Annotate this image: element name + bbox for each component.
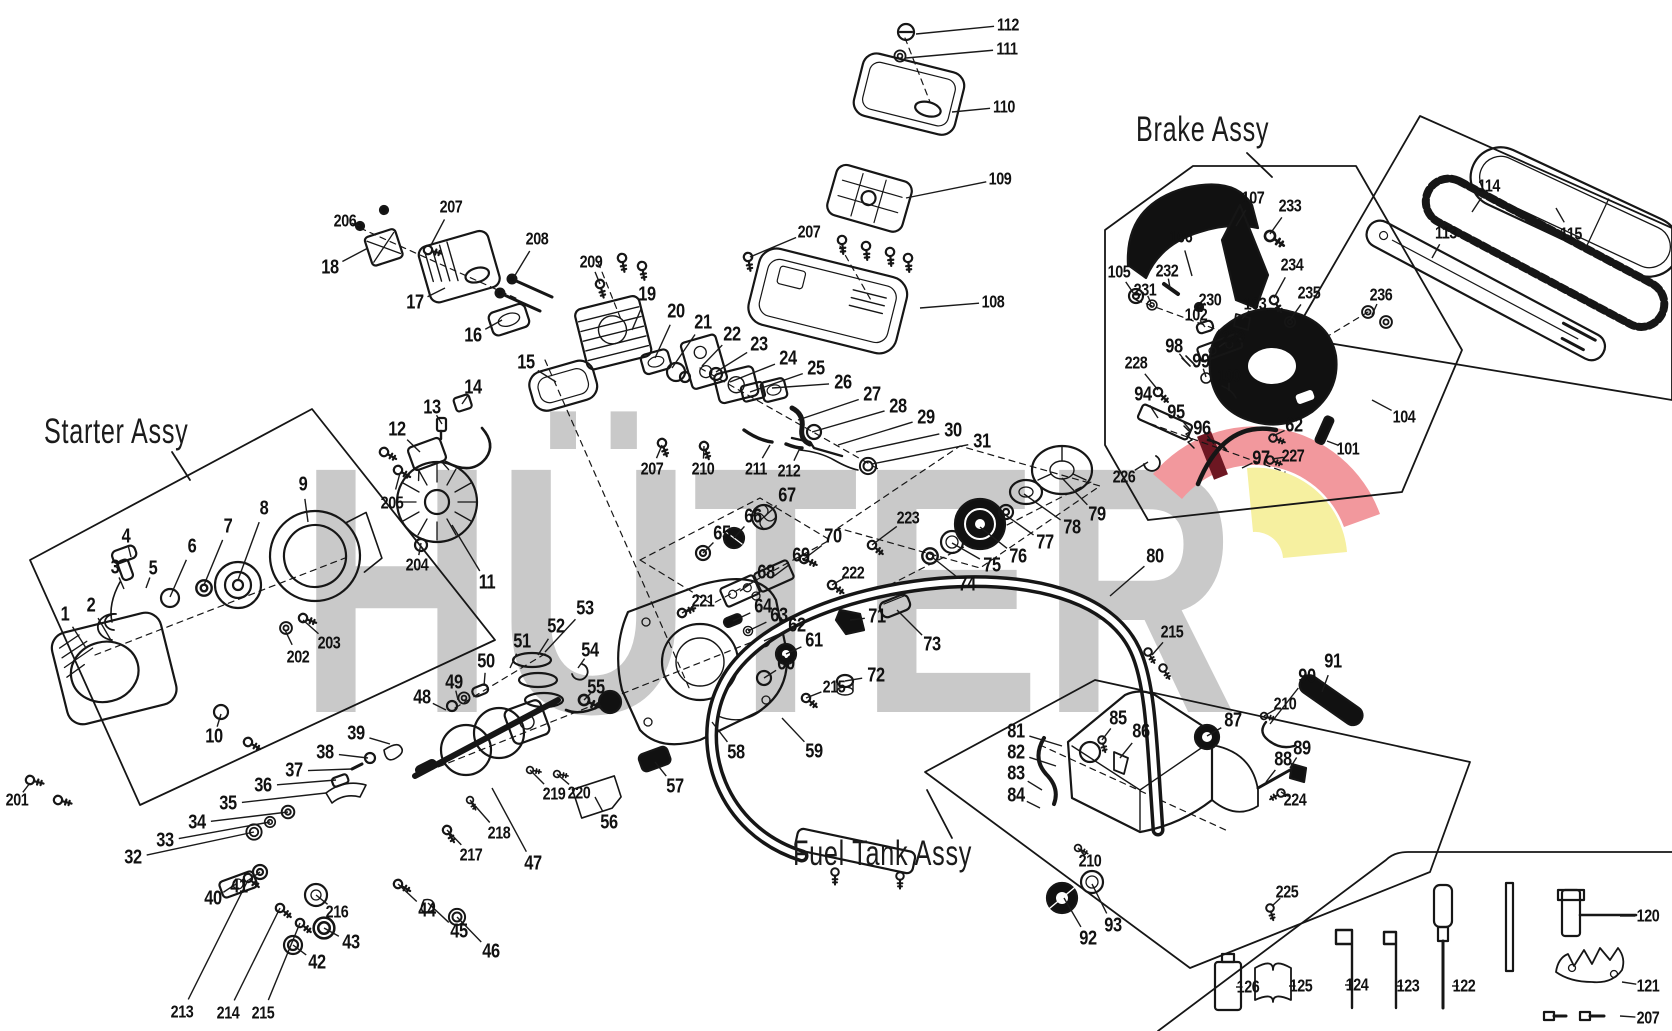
part-callout-18-9: 18 (321, 257, 338, 280)
part-callout-56-82: 56 (600, 812, 617, 835)
part-callout-16-12: 16 (464, 325, 481, 348)
part-callout-7-43: 7 (224, 516, 233, 539)
part-callout-221-92: 221 (692, 591, 715, 612)
part-callout-38-59: 38 (316, 742, 333, 765)
part-callout-204-35: 204 (406, 555, 429, 576)
part-callout-112-0: 112 (997, 15, 1019, 36)
part-callout-106-114: 106 (1170, 227, 1193, 248)
part-callout-66-97: 66 (744, 506, 761, 529)
part-callout-62-132: 62 (1285, 415, 1302, 438)
part-callout-23-18: 23 (750, 334, 767, 357)
part-callout-1-37: 1 (61, 604, 70, 627)
part-callout-55-57: 55 (587, 677, 604, 700)
part-callout-22-17: 22 (723, 324, 740, 347)
part-callout-107-115: 107 (1242, 188, 1265, 209)
part-callout-122-162: 122 (1453, 976, 1476, 997)
part-callout-63-90: 63 (770, 605, 787, 628)
part-callout-85-144: 85 (1109, 708, 1126, 731)
part-callout-12-31: 12 (388, 419, 405, 442)
part-callout-90-148: 90 (1298, 666, 1315, 689)
part-callout-214-72: 214 (217, 1003, 240, 1024)
part-callout-110-2: 110 (993, 97, 1015, 118)
part-callout-215-73: 215 (252, 1003, 275, 1024)
part-callout-224-152: 224 (1284, 790, 1307, 811)
part-callout-29-24: 29 (917, 407, 934, 430)
part-callout-210-154: 210 (1079, 851, 1102, 872)
part-callout-19-14: 19 (638, 284, 655, 307)
part-callout-26-21: 26 (834, 372, 851, 395)
part-callout-11-36: 11 (479, 572, 496, 595)
part-callout-234-121: 234 (1281, 255, 1304, 276)
part-callout-53-51: 53 (576, 598, 593, 621)
part-callout-49-54: 49 (445, 672, 462, 695)
part-callout-64-91: 64 (754, 596, 771, 619)
part-callout-207-8: 207 (440, 197, 463, 218)
part-callout-68-93: 68 (757, 562, 774, 585)
part-callout-97-130: 97 (1252, 448, 1269, 471)
part-callout-34-63: 34 (188, 812, 205, 835)
part-callout-72-101: 72 (867, 665, 884, 688)
part-callout-213-71: 213 (171, 1002, 194, 1023)
part-callout-207-29: 207 (641, 459, 664, 480)
part-callout-100-125: 100 (1218, 366, 1241, 387)
part-callout-210-147: 210 (1274, 694, 1297, 715)
part-callout-79-109: 79 (1088, 504, 1105, 527)
part-callout-48-55: 48 (413, 687, 430, 710)
part-callout-209-6: 209 (580, 252, 603, 273)
part-callout-203-49: 203 (318, 633, 341, 654)
part-callout-43-70: 43 (342, 932, 359, 955)
part-callout-52-50: 52 (547, 616, 564, 639)
part-callout-229-119: 229 (1222, 327, 1245, 348)
part-callout-17-10: 17 (406, 292, 423, 315)
part-callout-39-58: 39 (347, 723, 364, 746)
part-callout-27-22: 27 (863, 384, 880, 407)
part-callout-10-46: 10 (205, 726, 222, 749)
parts-diagram-canvas: HÜTER (0, 0, 1672, 1031)
part-callout-33-64: 33 (156, 830, 173, 853)
part-callout-109-3: 109 (989, 169, 1012, 190)
part-callout-69-94: 69 (792, 545, 809, 568)
part-callout-113-137: 113 (1435, 223, 1457, 244)
part-callout-74-104: 74 (958, 574, 975, 597)
part-callout-236-136: 236 (1370, 285, 1393, 306)
part-callout-37-60: 37 (285, 760, 302, 783)
part-callout-216-68: 216 (326, 902, 349, 923)
part-callout-215-87: 215 (823, 677, 846, 698)
part-callout-4-40: 4 (122, 526, 131, 549)
part-callout-205-34: 205 (381, 493, 404, 514)
part-callout-114-138: 114 (1478, 176, 1500, 197)
part-callout-219-80: 219 (543, 784, 566, 805)
part-callout-207-165: 207 (1637, 1008, 1660, 1029)
part-callout-20-15: 20 (667, 301, 684, 324)
part-callout-60-86: 60 (777, 653, 794, 676)
part-callout-81-140: 81 (1007, 721, 1024, 744)
part-callout-104-134: 104 (1393, 407, 1416, 428)
part-callout-92-155: 92 (1079, 928, 1096, 951)
part-callout-227-131: 227 (1282, 446, 1305, 467)
part-callout-121-164: 121 (1637, 976, 1660, 997)
part-callout-123-161: 123 (1397, 976, 1420, 997)
part-callout-80-110: 80 (1146, 546, 1163, 569)
part-callout-88-150: 88 (1274, 749, 1291, 772)
part-callout-25-20: 25 (807, 358, 824, 381)
part-callout-98-123: 98 (1165, 336, 1182, 359)
part-callout-9-45: 9 (299, 474, 308, 497)
part-callout-82-141: 82 (1007, 742, 1024, 765)
part-callout-101-133: 101 (1337, 439, 1360, 460)
part-callout-233-116: 233 (1279, 196, 1302, 217)
part-callout-70-95: 70 (824, 526, 841, 549)
part-callout-31-26: 31 (973, 431, 990, 454)
part-callout-32-65: 32 (124, 847, 141, 870)
part-callout-54-56: 54 (581, 640, 598, 663)
part-callout-35-62: 35 (219, 793, 236, 816)
part-callout-87-146: 87 (1224, 710, 1241, 733)
part-callout-211-27: 211 (745, 459, 767, 480)
part-callout-45-75: 45 (450, 921, 467, 944)
part-callout-120-163: 120 (1637, 906, 1660, 927)
part-callout-47-79: 47 (524, 853, 541, 876)
part-callout-125-159: 125 (1290, 976, 1313, 997)
part-callout-76-106: 76 (1009, 546, 1026, 569)
part-callout-212-28: 212 (778, 461, 801, 482)
part-callout-83-142: 83 (1007, 763, 1024, 786)
part-callout-105-111: 105 (1108, 262, 1131, 283)
part-callout-65-98: 65 (713, 523, 730, 546)
part-callout-126-158: 126 (1237, 977, 1260, 998)
part-callout-50-53: 50 (477, 651, 494, 674)
part-callout-206-7: 206 (334, 211, 357, 232)
part-callout-220-81: 220 (568, 783, 591, 804)
part-callout-30-25: 30 (944, 420, 961, 443)
part-callout-41-67: 41 (230, 876, 247, 899)
part-callout-14-33: 14 (464, 377, 481, 400)
part-callout-231-112: 231 (1134, 280, 1157, 301)
part-callout-2-38: 2 (87, 595, 96, 618)
part-callout-223-103: 223 (897, 508, 920, 529)
part-callout-78-108: 78 (1063, 517, 1080, 540)
part-callout-115-139: 115 (1560, 224, 1582, 245)
part-callout-59-85: 59 (805, 741, 822, 764)
part-callout-73-102: 73 (923, 634, 940, 657)
part-callout-232-113: 232 (1156, 261, 1179, 282)
part-callout-15-13: 15 (517, 352, 534, 375)
part-callout-75-105: 75 (983, 555, 1000, 578)
part-callout-89-151: 89 (1293, 738, 1310, 761)
part-callout-84-143: 84 (1007, 785, 1024, 808)
part-callout-210-30: 210 (692, 459, 715, 480)
part-callout-28-23: 28 (889, 396, 906, 419)
callout-layer: 1121111101091082072092062071817208161519… (0, 0, 1672, 1031)
part-callout-108-4: 108 (982, 292, 1005, 313)
part-callout-21-16: 21 (694, 312, 711, 335)
part-callout-215-157: 215 (1161, 622, 1184, 643)
part-callout-77-107: 77 (1036, 532, 1053, 555)
part-callout-226-135: 226 (1113, 467, 1136, 488)
part-callout-93-156: 93 (1104, 915, 1121, 938)
part-callout-235-122: 235 (1298, 283, 1321, 304)
part-callout-6-42: 6 (188, 536, 197, 559)
part-callout-103-120: 103 (1244, 294, 1267, 315)
part-callout-61-88: 61 (805, 630, 822, 653)
part-callout-102-118: 102 (1185, 305, 1208, 326)
part-callout-67-96: 67 (778, 485, 795, 508)
part-callout-228-126: 228 (1125, 353, 1148, 374)
part-callout-86-145: 86 (1132, 721, 1149, 744)
part-callout-42-69: 42 (308, 952, 325, 975)
part-callout-95-128: 95 (1167, 402, 1184, 425)
part-callout-91-149: 91 (1324, 651, 1341, 674)
part-callout-202-48: 202 (287, 647, 310, 668)
part-callout-8-44: 8 (260, 498, 269, 521)
part-callout-46-76: 46 (482, 941, 499, 964)
part-callout-225-153: 225 (1276, 882, 1299, 903)
part-callout-218-78: 218 (488, 823, 511, 844)
part-callout-217-77: 217 (460, 845, 483, 866)
part-callout-13-32: 13 (423, 397, 440, 420)
part-callout-62-89: 62 (788, 615, 805, 638)
part-callout-208-11: 208 (526, 229, 549, 250)
part-callout-24-19: 24 (779, 348, 796, 371)
part-callout-51-52: 51 (513, 631, 530, 654)
part-callout-57-83: 57 (666, 776, 683, 799)
part-callout-58-84: 58 (727, 742, 744, 765)
part-callout-3-39: 3 (111, 557, 120, 580)
part-callout-124-160: 124 (1346, 975, 1369, 996)
part-callout-222-99: 222 (842, 563, 865, 584)
part-callout-201-47: 201 (6, 790, 29, 811)
part-callout-40-66: 40 (204, 888, 221, 911)
part-callout-44-74: 44 (418, 900, 435, 923)
part-callout-207-5: 207 (798, 222, 821, 243)
part-callout-111-1: 111 (996, 39, 1017, 60)
part-callout-71-100: 71 (868, 606, 885, 629)
part-callout-5-41: 5 (149, 558, 158, 581)
part-callout-36-61: 36 (254, 775, 271, 798)
part-callout-99-124: 99 (1192, 351, 1209, 374)
part-callout-94-127: 94 (1134, 384, 1151, 407)
part-callout-96-129: 96 (1193, 418, 1210, 441)
